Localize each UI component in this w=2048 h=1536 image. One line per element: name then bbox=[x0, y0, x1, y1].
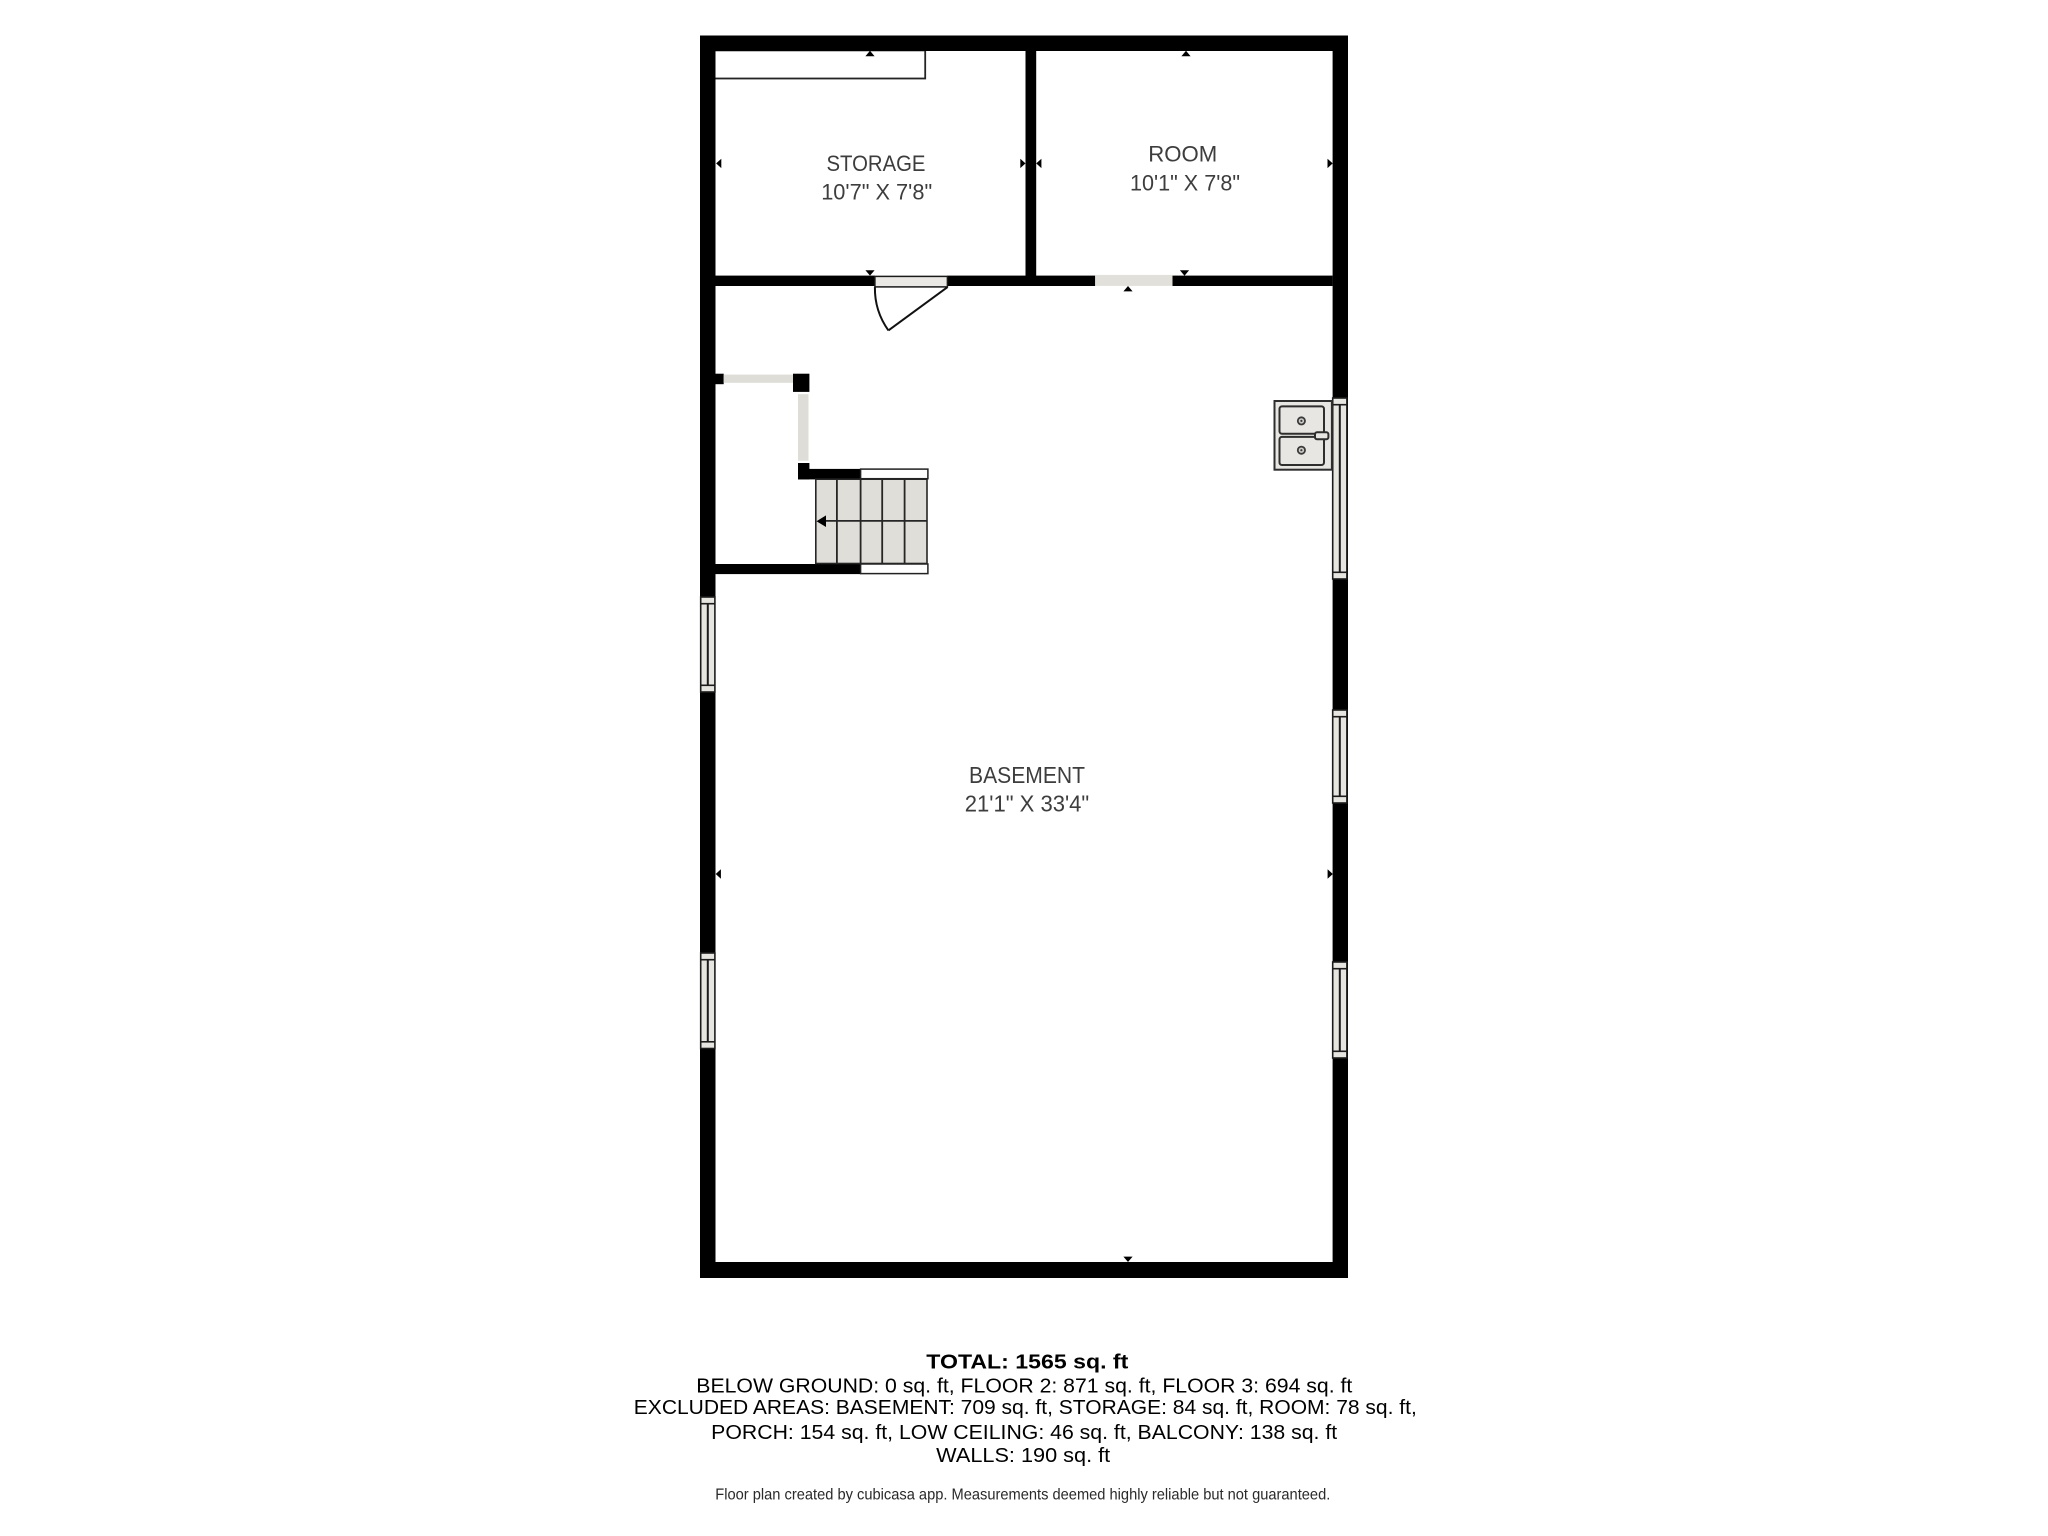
svg-text:EXCLUDED AREAS: BASEMENT: 709: EXCLUDED AREAS: BASEMENT: 709 sq. ft, ST… bbox=[634, 1397, 1417, 1419]
svg-text:ROOM: ROOM bbox=[1148, 142, 1217, 167]
svg-text:Floor plan created by cubicasa: Floor plan created by cubicasa app. Meas… bbox=[715, 1487, 1330, 1504]
svg-text:BASEMENT: BASEMENT bbox=[969, 762, 1085, 788]
svg-text:STORAGE: STORAGE bbox=[827, 151, 926, 176]
svg-text:BELOW GROUND: 0 sq. ft, FLOOR: BELOW GROUND: 0 sq. ft, FLOOR 2: 871 sq.… bbox=[696, 1376, 1352, 1398]
svg-text:21'1" X 33'4": 21'1" X 33'4" bbox=[965, 790, 1090, 816]
svg-text:10'1" X 7'8": 10'1" X 7'8" bbox=[1130, 171, 1240, 196]
svg-text:TOTAL: 1565 sq. ft: TOTAL: 1565 sq. ft bbox=[926, 1352, 1128, 1374]
svg-text:10'7" X 7'8": 10'7" X 7'8" bbox=[821, 180, 932, 205]
svg-text:PORCH: 154 sq. ft, LOW CEILING: PORCH: 154 sq. ft, LOW CEILING: 46 sq. f… bbox=[711, 1422, 1337, 1444]
svg-text:WALLS: 190 sq. ft: WALLS: 190 sq. ft bbox=[936, 1445, 1110, 1467]
